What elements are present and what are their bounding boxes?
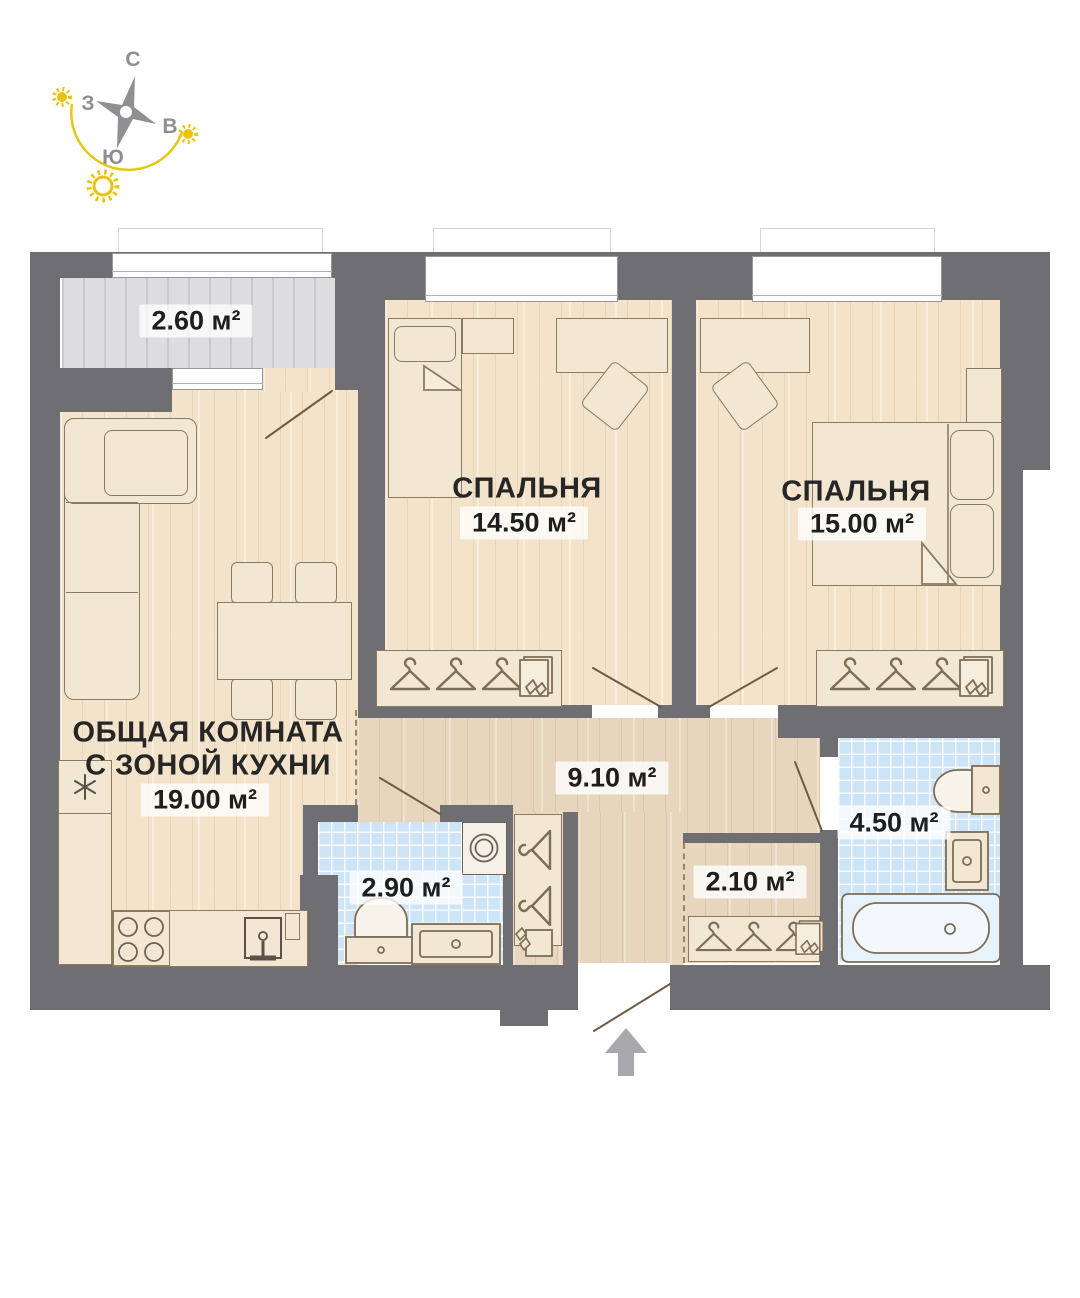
wardrobe-room-area-label: 2.10 м² [693, 866, 806, 899]
wardrobe-room-dashed-line [683, 843, 685, 963]
compass-west-label: З [81, 92, 94, 115]
sun-path-arc [71, 104, 182, 170]
wall-wardrobe-room-top [683, 833, 820, 843]
nightstand [966, 368, 1002, 428]
bedroom1-name-label: СПАЛЬНЯ [452, 473, 602, 506]
sun-icon [180, 126, 196, 142]
entry-arrow-icon [605, 1028, 647, 1076]
wall-entry-step [500, 1008, 548, 1026]
wall-coat-niche-right [563, 812, 578, 967]
bed-pillow [394, 326, 456, 362]
compass-east-label: В [162, 115, 177, 138]
wall-bathroom-small-top-left [303, 805, 358, 822]
living-balcony-window [172, 368, 263, 390]
wall-left [30, 252, 60, 1010]
bed-pillow [950, 504, 994, 578]
wardrobe-bedroom2 [816, 650, 1004, 707]
bedroom2-name-label: СПАЛЬНЯ [781, 476, 931, 509]
stove [113, 911, 170, 966]
dining-table [217, 602, 352, 680]
shelf [462, 318, 514, 354]
bedroom1-area-label: 14.50 м² [460, 507, 588, 540]
wall-bottom [30, 965, 1050, 1010]
wall-bathroom-large-left-upper [820, 718, 838, 757]
coat-rack [514, 814, 562, 946]
washing-machine [462, 822, 507, 875]
bathroom-large-floor [838, 738, 1000, 963]
dish-drainer [285, 913, 300, 940]
sofa-seam-1 [66, 502, 138, 503]
compass-north-label: С [125, 48, 140, 71]
sofa-seam-2 [66, 592, 138, 593]
bathroom-small-area-label: 2.90 м² [349, 872, 462, 905]
sun-icon [54, 89, 70, 105]
wall-bathroom-large-left-lower [820, 830, 838, 965]
balcony-window-bay [118, 228, 323, 254]
living-area-label: 19.00 м² [141, 784, 269, 817]
hallway-area-label: 9.10 м² [555, 762, 668, 795]
entry-door-opening [578, 963, 670, 1010]
wall-topleft-block [30, 368, 172, 412]
bedroom2-area-label: 15.00 м² [798, 508, 926, 541]
bedroom2-window [752, 256, 942, 302]
bedroom1-window [425, 256, 618, 302]
sun-icon-large [89, 172, 117, 200]
compass-south-label: Ю [102, 146, 124, 169]
dining-chair [231, 678, 273, 720]
floor-plan: С З В Ю 2.60 м² СПАЛЬНЯ 14.50 м² СПАЛЬНЯ… [0, 0, 1080, 1298]
wall-between-bedrooms [672, 300, 696, 705]
wall-between-bedrooms-foot [658, 705, 710, 718]
living-name-label-line2: С ЗОНОЙ КУХНИ [85, 750, 331, 783]
wall-balcony-right [335, 278, 358, 390]
bed-pillow [950, 430, 994, 500]
wall-right [1000, 252, 1023, 1010]
wardrobe-bedroom1 [376, 650, 562, 707]
compass-center-dot [120, 106, 132, 118]
dining-chair [295, 678, 337, 720]
wall-bathroom-large-top [778, 705, 1000, 738]
dining-chair [295, 562, 337, 604]
wardrobe-room-hanger-box [688, 916, 820, 962]
dining-chair [231, 562, 273, 604]
balcony-window [112, 253, 332, 278]
compass-star-icon [96, 76, 156, 148]
kitchen-counter-left [58, 813, 112, 965]
compass: С З В Ю [54, 48, 196, 200]
sofa-cushion [104, 430, 188, 496]
entry-corridor-floor [578, 812, 683, 967]
bathroom-large-area-label: 4.50 м² [837, 807, 950, 840]
kitchen-sink [244, 917, 282, 959]
desk [700, 318, 810, 373]
balcony-door-threshold [263, 368, 335, 392]
living-name-label-line1: ОБЩАЯ КОМНАТА [73, 717, 344, 750]
kitchen-zone-dashed-line [355, 710, 357, 805]
balcony-area-label: 2.60 м² [139, 305, 252, 338]
